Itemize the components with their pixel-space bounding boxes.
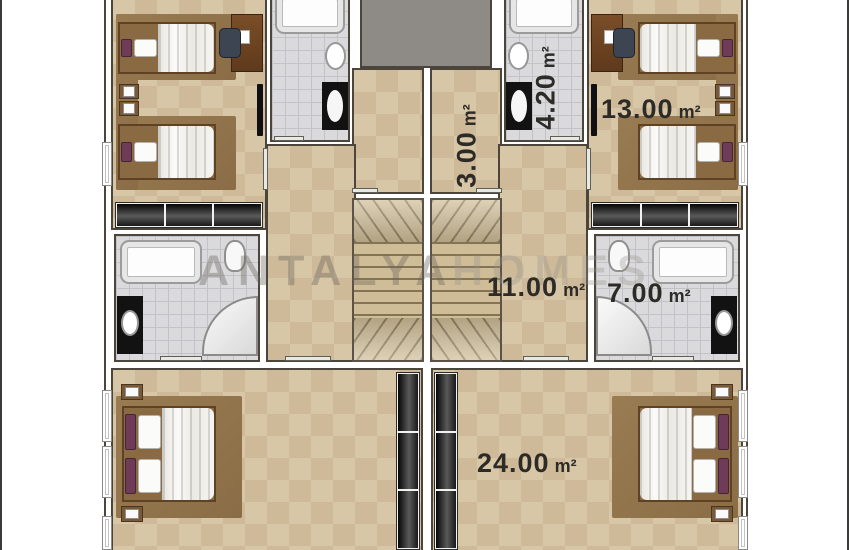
- single-bed: [638, 124, 736, 180]
- nightstand: [715, 101, 735, 116]
- window: [102, 446, 112, 498]
- watermark-antalya: ANTALYA: [198, 247, 455, 296]
- toilet-icon: [322, 82, 348, 130]
- bathtub-icon: [120, 240, 202, 284]
- door: [352, 188, 378, 193]
- bathtub-icon: [652, 240, 734, 284]
- stair-winder-bottom: [354, 318, 422, 360]
- stair-winder-bottom: [432, 318, 500, 360]
- label-bedroom-top-right: 13.00m²: [601, 96, 701, 123]
- window: [102, 390, 112, 442]
- door: [586, 148, 591, 190]
- wardrobe: [115, 202, 263, 228]
- label-bathroom-mid-right: 7.00m²: [607, 280, 691, 307]
- door: [476, 188, 502, 193]
- window: [738, 516, 748, 550]
- window: [738, 142, 748, 186]
- label-hall-right: 11.00m²: [487, 274, 585, 301]
- double-bed: [122, 406, 216, 502]
- image-left-border: [0, 0, 2, 550]
- window: [102, 516, 112, 550]
- window: [738, 390, 748, 442]
- door: [263, 148, 268, 190]
- wardrobe: [591, 202, 739, 228]
- elevator-shaft: [360, 0, 492, 68]
- label-bedroom-bottom-right: 24.00m²: [477, 450, 577, 477]
- room-storage-left: [352, 68, 424, 194]
- tv: [591, 84, 597, 136]
- nightstand: [711, 506, 733, 522]
- sink-icon: [121, 310, 139, 336]
- wardrobe: [396, 372, 420, 550]
- desk-chair: [219, 28, 241, 58]
- bathtub-icon: [509, 0, 579, 34]
- double-bed: [638, 406, 732, 502]
- label-bathroom-top-right: 4.20m²: [533, 46, 560, 130]
- wardrobe: [434, 372, 458, 550]
- single-bed: [118, 124, 216, 180]
- floor-plan: ANTALYA HOMES 13.00m² 4.20m² 3.00m² 11.0…: [0, 0, 850, 550]
- label-storage-right: 3.00m²: [454, 104, 481, 188]
- sink-icon: [508, 42, 529, 70]
- sink-icon: [715, 310, 733, 336]
- window: [102, 142, 112, 186]
- door: [274, 136, 304, 141]
- stair-winder-top: [354, 200, 422, 242]
- tv: [257, 84, 263, 136]
- bathtub-icon: [275, 0, 345, 34]
- desk-chair: [613, 28, 635, 58]
- door: [523, 356, 569, 361]
- single-bed: [118, 22, 216, 74]
- door: [550, 136, 580, 141]
- image-right-border: [847, 0, 849, 550]
- door: [160, 356, 202, 361]
- nightstand: [121, 384, 143, 400]
- single-bed: [638, 22, 736, 74]
- nightstand: [119, 84, 139, 99]
- nightstand: [715, 84, 735, 99]
- nightstand: [711, 384, 733, 400]
- nightstand: [119, 101, 139, 116]
- toilet-icon: [506, 82, 532, 130]
- sink-icon: [325, 42, 346, 70]
- door: [285, 356, 331, 361]
- nightstand: [121, 506, 143, 522]
- window: [738, 446, 748, 498]
- door: [652, 356, 694, 361]
- stair-winder-top: [432, 200, 500, 242]
